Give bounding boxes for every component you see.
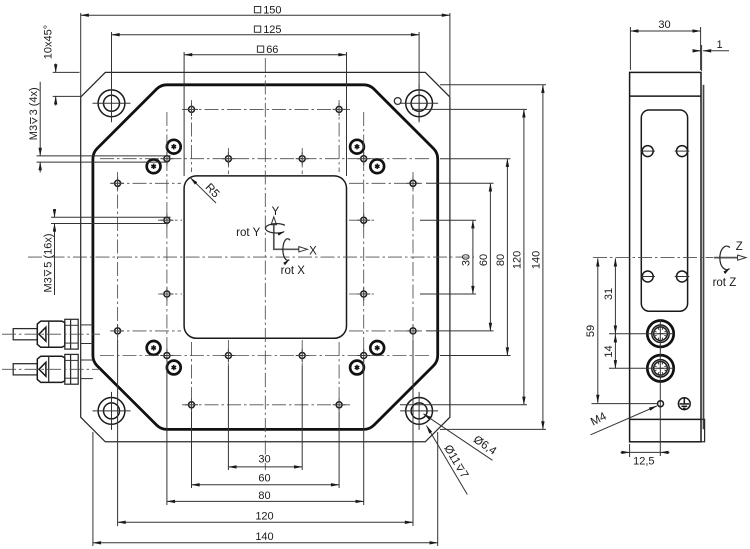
svg-text:30: 30: [258, 453, 270, 465]
svg-text:1: 1: [716, 39, 722, 51]
svg-text:rot Y: rot Y: [236, 227, 260, 239]
svg-text:80: 80: [495, 254, 507, 266]
svg-text:66: 66: [266, 44, 278, 56]
svg-text:59: 59: [585, 325, 597, 337]
svg-text:80: 80: [258, 490, 270, 502]
svg-text:Y: Y: [272, 206, 280, 218]
svg-text:M3: M3: [28, 125, 40, 140]
svg-text:10x45°: 10x45°: [42, 25, 54, 59]
svg-text:3 (4x): 3 (4x): [28, 87, 40, 115]
svg-text:30: 30: [658, 19, 670, 31]
svg-text:rot Z: rot Z: [713, 277, 737, 289]
svg-text:rot X: rot X: [281, 265, 306, 277]
svg-text:120: 120: [512, 251, 524, 269]
svg-text:60: 60: [258, 472, 270, 484]
svg-text:Z: Z: [736, 241, 743, 253]
svg-text:14: 14: [603, 345, 615, 357]
svg-text:140: 140: [531, 251, 543, 269]
svg-text:M3: M3: [42, 277, 54, 292]
svg-text:60: 60: [478, 254, 490, 266]
svg-text:12,5: 12,5: [633, 456, 654, 468]
svg-text:125: 125: [263, 24, 281, 36]
svg-text:140: 140: [255, 531, 273, 543]
svg-text:X: X: [309, 245, 317, 257]
svg-text:150: 150: [263, 4, 281, 16]
svg-text:120: 120: [255, 511, 273, 523]
svg-text:30: 30: [461, 254, 473, 266]
svg-text:5 (16x): 5 (16x): [42, 233, 54, 267]
svg-text:31: 31: [603, 288, 615, 300]
